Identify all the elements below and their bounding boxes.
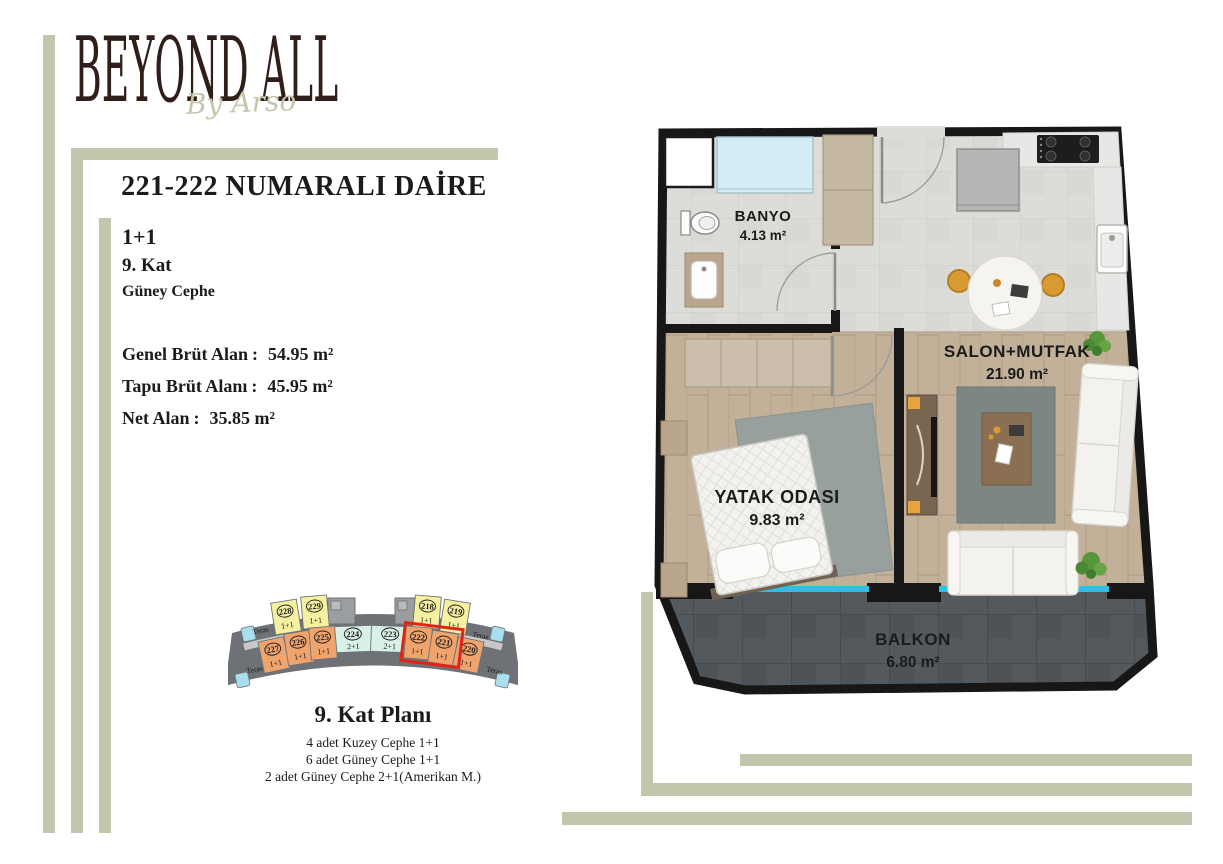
keyplan-unit-228: 228 1+1	[271, 599, 302, 635]
wall-bathroom-bottom	[658, 324, 832, 333]
kitchen-sink-icon	[1097, 225, 1127, 273]
room-label-balkon: BALKON	[875, 630, 951, 649]
keyplan-unit-222: 222 1+1	[404, 626, 433, 660]
decor-line-bottom-3	[562, 812, 1192, 825]
area-row-net: Net Alan:35.85 m²	[122, 408, 333, 429]
spec-floor: 9. Kat	[122, 256, 215, 275]
decor-line-bottom-1	[740, 754, 1192, 766]
room-label-banyo: BANYO	[735, 208, 792, 225]
entrance-gap	[877, 126, 945, 138]
armchair-sofa-icon	[1071, 363, 1138, 527]
coffee-table-icon	[982, 413, 1031, 485]
shower-icon	[717, 137, 813, 193]
sofa-icon	[948, 531, 1078, 595]
brand-tagline: By Arso	[185, 84, 296, 121]
page-title: 221-222 NUMARALI DAİRE	[96, 171, 512, 203]
svg-text:229: 229	[308, 600, 322, 611]
svg-text:218: 218	[421, 600, 435, 611]
area-value: 45.95 m²	[267, 376, 332, 396]
key-plan-image: 224 2+1 223 2+1 228 1+1 229 1+1 218 1+1	[228, 589, 518, 701]
room-area-yatak: 9.83 m²	[749, 512, 804, 529]
svg-text:224: 224	[346, 629, 360, 639]
area-label: Genel Brüt Alan	[122, 344, 248, 364]
floor-plan-image: BANYO 4.13 m² SALON+MUTFAK 21.90 m² YATA…	[645, 125, 1170, 707]
room-area-salon: 21.90 m²	[986, 366, 1048, 383]
legend-line-2: 6 adet Güney Cephe 1+1	[168, 751, 578, 768]
balcony-pier-right	[1107, 583, 1151, 599]
spec-type: 1+1	[122, 226, 215, 248]
spec-facade: Güney Cephe	[122, 284, 215, 300]
area-separator: :	[190, 408, 210, 428]
keyplan-unit-224: 224 2+1	[334, 625, 373, 652]
keyplan-unit-225: 225 1+1	[309, 626, 338, 660]
dining-table-icon	[968, 256, 1042, 330]
svg-text:226: 226	[291, 636, 305, 648]
area-row-deed: Tapu Brüt Alanı:45.95 m²	[122, 376, 333, 397]
svg-text:222: 222	[412, 631, 426, 642]
svg-text:221: 221	[437, 636, 451, 648]
toilet-icon	[681, 211, 719, 235]
area-label: Net Alan	[122, 408, 190, 428]
decor-bar-left-1	[43, 35, 55, 833]
fridge-icon	[957, 149, 1019, 211]
room-label-yatak: YATAK ODASI	[714, 487, 839, 507]
svg-text:1+1: 1+1	[317, 646, 330, 656]
nightstand-icon-2	[661, 563, 687, 597]
room-area-balkon: 6.80 m²	[886, 654, 939, 671]
brochure-page: BEYOND ALL By Arso 221-222 NUMARALI DAİR…	[0, 0, 1223, 864]
hall-wardrobe	[823, 135, 873, 245]
bedroom-wardrobe	[685, 339, 831, 387]
decor-bar-left-2	[71, 148, 83, 833]
key-plan-legend: 4 adet Kuzey Cephe 1+1 6 adet Güney Ceph…	[168, 734, 578, 785]
area-separator: :	[248, 344, 268, 364]
stove-icon	[1037, 135, 1099, 163]
svg-text:1+1: 1+1	[309, 615, 322, 625]
terrace-square	[490, 626, 506, 642]
area-label: Tapu Brüt Alanı	[122, 376, 247, 396]
area-value: 54.95 m²	[268, 344, 333, 364]
tv-unit-icon	[907, 395, 937, 515]
bathroom-sink-icon	[685, 253, 723, 307]
svg-text:228: 228	[278, 605, 292, 617]
decor-line-bottom-2	[641, 783, 1192, 796]
decor-line-title-top	[71, 148, 498, 160]
svg-text:225: 225	[316, 631, 330, 642]
svg-text:223: 223	[384, 629, 397, 639]
decor-bar-left-3	[99, 218, 111, 833]
wall-bathroom-right-lower	[831, 310, 840, 332]
nightstand-icon	[661, 421, 687, 455]
wall-bedroom-salon	[894, 328, 904, 590]
legend-line-3: 2 adet Güney Cephe 2+1(Amerikan M.)	[168, 768, 578, 785]
area-value: 35.85 m²	[210, 408, 275, 428]
svg-text:2+1: 2+1	[383, 642, 396, 651]
area-table: Genel Brüt Alan:54.95 m² Tapu Brüt Alanı…	[122, 344, 333, 440]
room-label-salon: SALON+MUTFAK	[944, 342, 1090, 361]
svg-text:219: 219	[449, 605, 463, 617]
keyplan-unit-229: 229 1+1	[301, 595, 330, 629]
svg-text:1+1: 1+1	[411, 646, 424, 656]
area-row-gross: Genel Brüt Alan:54.95 m²	[122, 344, 333, 365]
area-separator: :	[247, 376, 267, 396]
key-plan-title: 9. Kat Planı	[228, 702, 518, 728]
room-area-banyo: 4.13 m²	[740, 228, 787, 243]
bathroom-niche	[665, 137, 713, 187]
svg-text:2+1: 2+1	[347, 642, 360, 651]
apartment-specs: 1+1 9. Kat Güney Cephe	[122, 226, 215, 300]
legend-line-1: 4 adet Kuzey Cephe 1+1	[168, 734, 578, 751]
